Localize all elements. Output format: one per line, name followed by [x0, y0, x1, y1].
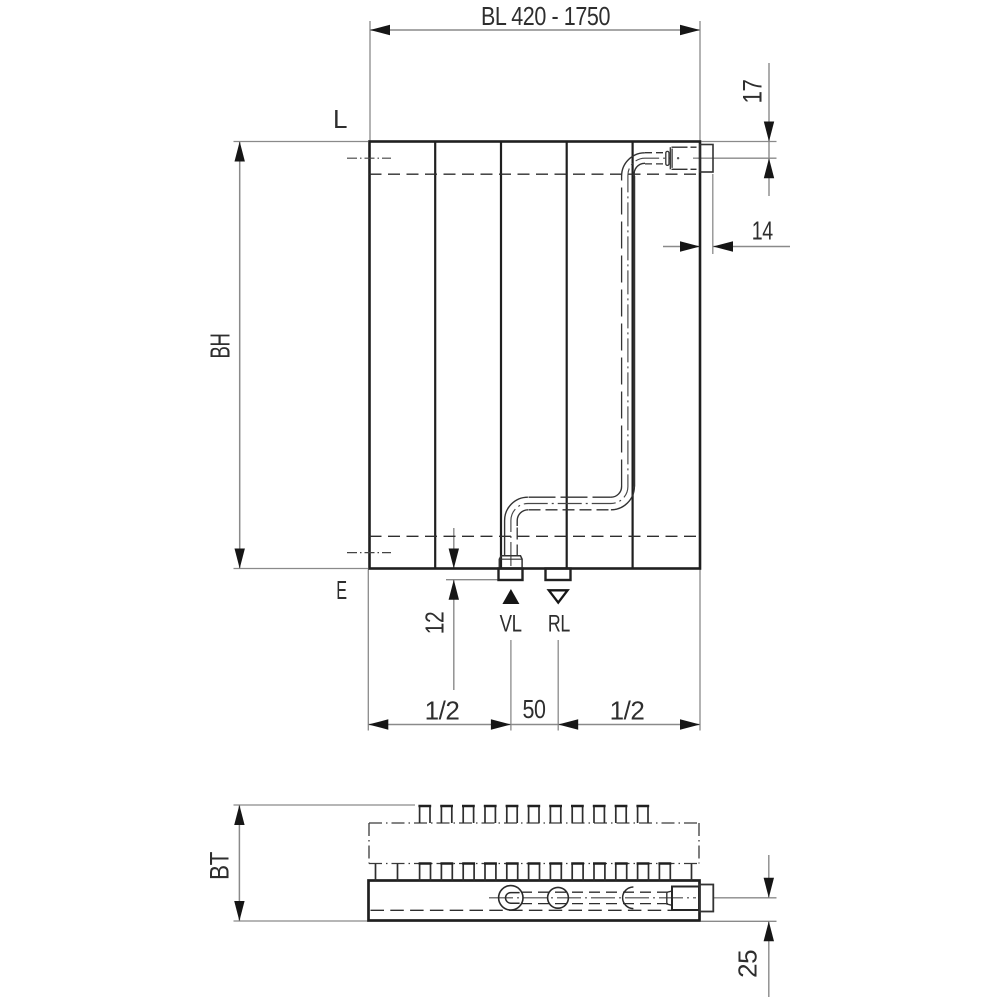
svg-text:12: 12: [420, 612, 450, 635]
svg-text:14: 14: [752, 216, 773, 246]
svg-text:BH: BH: [205, 334, 236, 359]
svg-text:BT: BT: [205, 852, 235, 880]
svg-text:VL: VL: [500, 611, 522, 638]
svg-text:E: E: [336, 575, 347, 605]
svg-text:BL 420 - 1750: BL 420 - 1750: [481, 1, 610, 31]
svg-text:1/2: 1/2: [610, 696, 645, 726]
svg-text:L: L: [333, 104, 347, 134]
svg-text:1/2: 1/2: [425, 696, 460, 726]
svg-text:50: 50: [523, 694, 546, 724]
svg-text:25: 25: [733, 950, 763, 978]
svg-text:RL: RL: [548, 611, 570, 638]
svg-text:17: 17: [738, 80, 768, 104]
